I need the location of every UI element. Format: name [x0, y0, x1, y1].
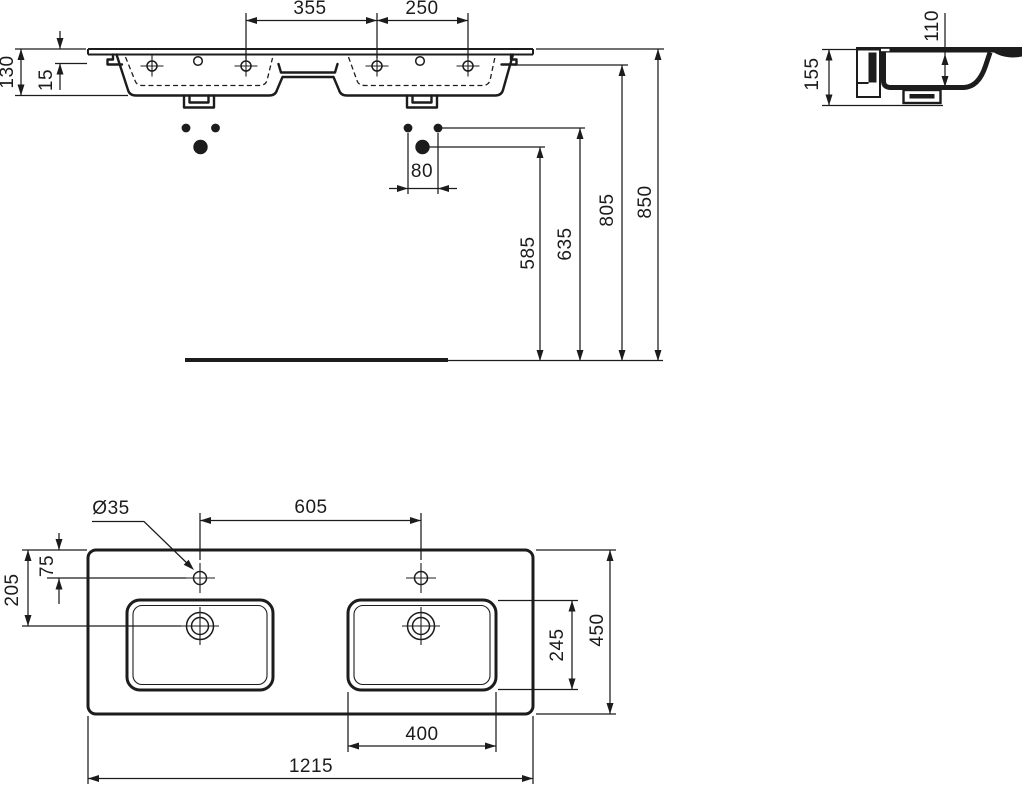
faucet-hole-right: [406, 563, 436, 593]
dim-label-450: 450: [587, 613, 609, 646]
front-elevation-view: [15, 13, 664, 361]
dim-label-205: 205: [2, 573, 24, 606]
dim-label-15: 15: [36, 69, 58, 91]
dim-label-1215: 1215: [289, 756, 333, 778]
bowl-right-outline: [348, 600, 496, 690]
section-bowl-wall: [884, 52, 991, 88]
dim-label-605: 605: [294, 497, 327, 519]
dim-635: [577, 128, 584, 361]
dim-155: [822, 50, 856, 106]
dim-label-585: 585: [518, 236, 540, 269]
technical-drawing-canvas: 355 250 130 15 80 585 635 805 850 155 11…: [0, 0, 1024, 786]
dim-label-155: 155: [802, 57, 824, 90]
drain-boss-right: [407, 96, 437, 108]
basin-body-outline: [117, 55, 514, 96]
dim-label-805: 805: [597, 193, 619, 226]
dim-label-850: 850: [635, 185, 657, 218]
dim-130-15: [15, 31, 128, 96]
dim-label-hole-diameter: Ø35: [92, 498, 129, 520]
countertop-slab: [88, 49, 533, 55]
dim-label-75: 75: [37, 555, 59, 577]
drain-boss-left: [184, 96, 214, 108]
overflow-hole-left: [194, 57, 203, 66]
mounting-tab-right: [502, 55, 517, 65]
dim-label-250: 250: [405, 0, 438, 20]
drain-left: [181, 607, 219, 645]
dim-label-110: 110: [922, 10, 944, 42]
inner-bowl-left-hidden: [126, 57, 273, 86]
dim-355-250: [246, 13, 468, 60]
plan-view: [22, 513, 616, 784]
inner-bowl-right-hidden: [349, 57, 496, 86]
dim-label-400: 400: [405, 724, 438, 746]
dim-75: [47, 533, 186, 604]
section-drain-bar: [910, 94, 935, 99]
section-back-wall-rib: [869, 53, 877, 83]
dim-805: [619, 65, 626, 361]
dim-label-130: 130: [0, 55, 19, 88]
leader-hole-diameter: [92, 522, 194, 571]
dim-605: [200, 513, 421, 560]
overflow-hole-right: [416, 57, 425, 66]
dim-label-80: 80: [411, 161, 433, 183]
drawing-linework: [0, 0, 1024, 786]
basin-bridge-inner-line: [279, 64, 338, 73]
dim-label-635: 635: [555, 227, 577, 260]
wall-fixing-holes: [182, 124, 443, 155]
section-front-lip: [994, 53, 1022, 58]
drain-right: [402, 607, 440, 645]
dim-label-355: 355: [293, 0, 326, 20]
dim-label-245: 245: [547, 628, 569, 661]
